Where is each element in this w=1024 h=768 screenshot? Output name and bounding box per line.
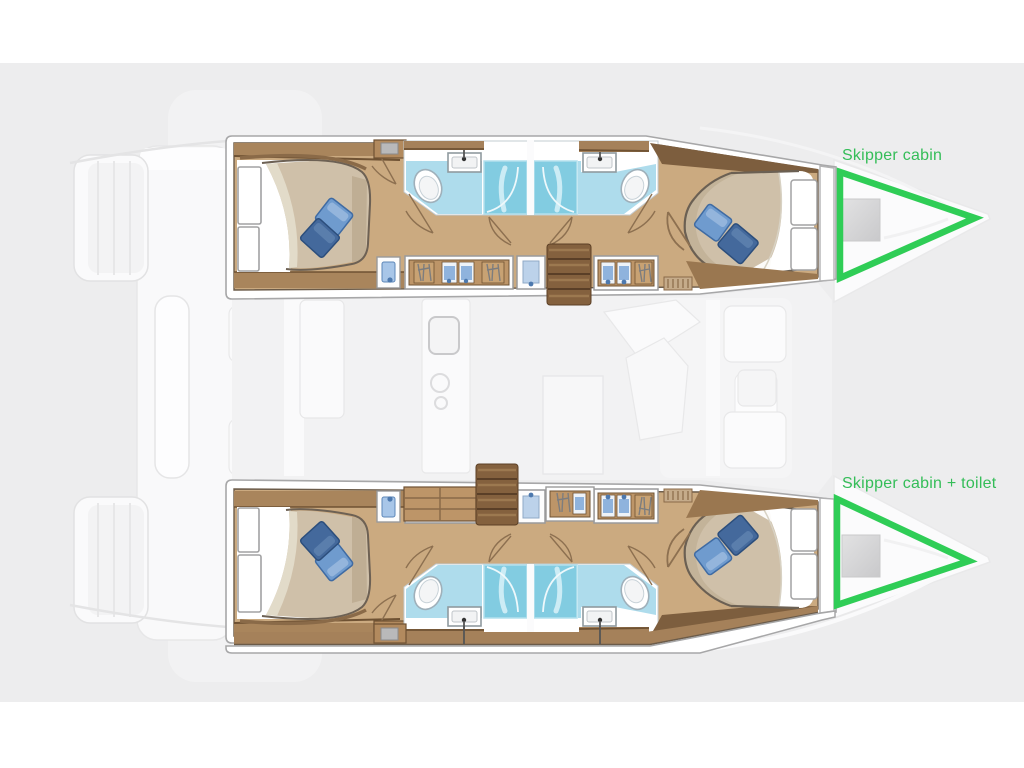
- svg-text:Skipper cabin: Skipper cabin: [842, 147, 942, 164]
- svg-text:Skipper cabin + toilet: Skipper cabin + toilet: [842, 475, 997, 492]
